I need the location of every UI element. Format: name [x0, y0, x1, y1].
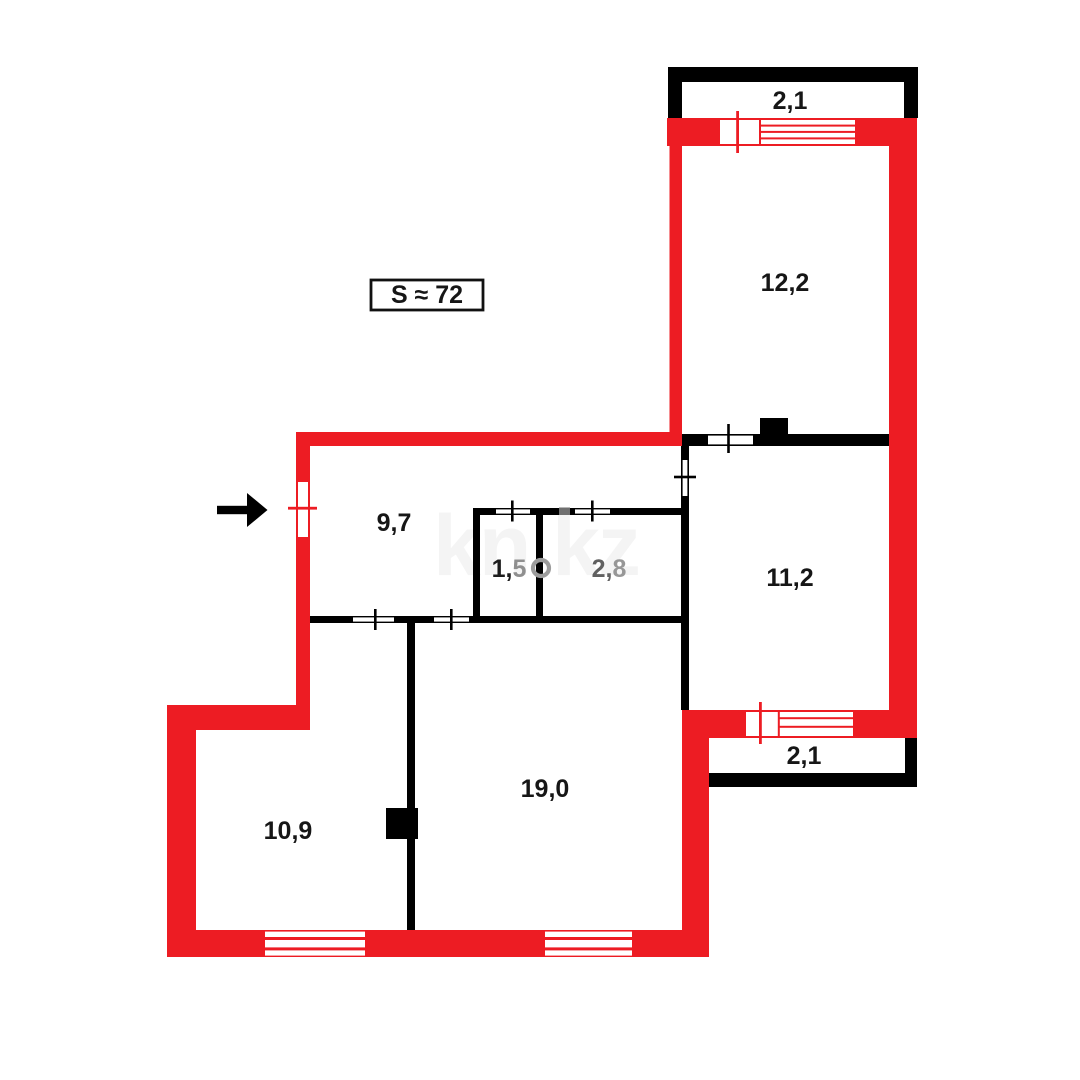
- svg-text:S ≈ 72: S ≈ 72: [391, 281, 463, 309]
- svg-text:12,2: 12,2: [761, 269, 810, 297]
- svg-text:2,1: 2,1: [787, 742, 822, 770]
- svg-text:1,5: 1,5: [492, 555, 527, 583]
- svg-text:10,9: 10,9: [264, 817, 313, 845]
- svg-text:19,0: 19,0: [521, 775, 570, 803]
- svg-text:2,8: 2,8: [592, 555, 627, 583]
- svg-text:11,2: 11,2: [766, 564, 813, 592]
- svg-text:9,7: 9,7: [377, 509, 412, 537]
- svg-text:2,1: 2,1: [773, 87, 808, 115]
